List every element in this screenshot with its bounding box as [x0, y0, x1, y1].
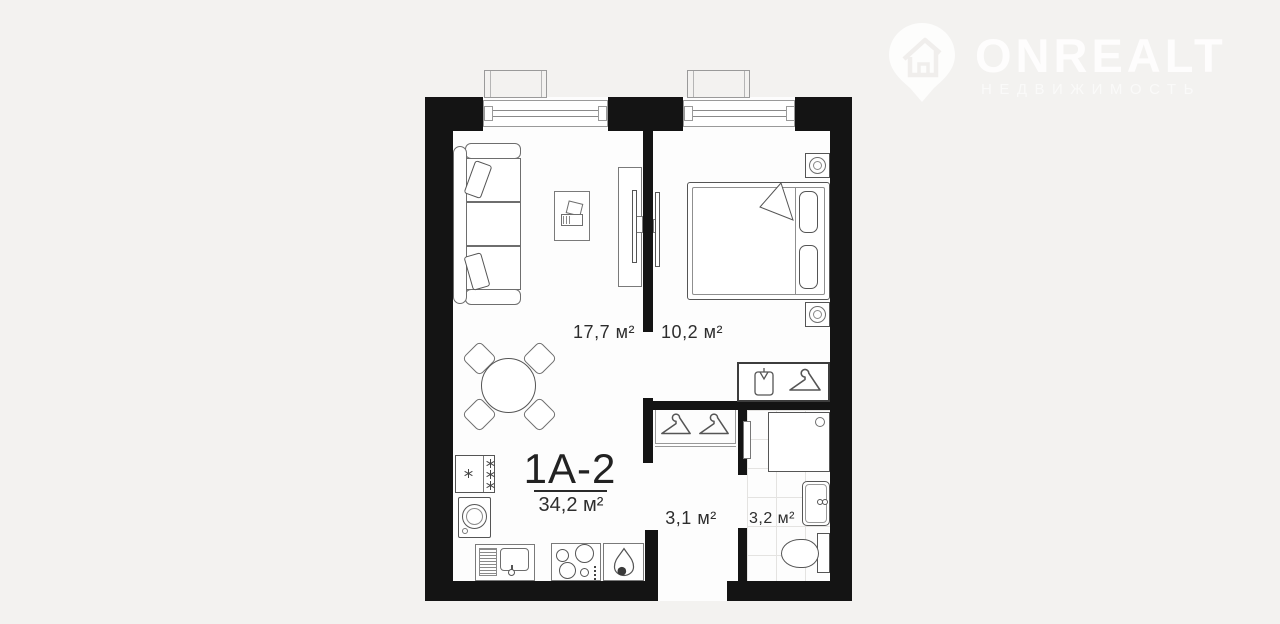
window-living-glass — [492, 110, 599, 117]
hanger-icon — [787, 369, 823, 395]
wall-left — [425, 97, 453, 601]
living-room-area-label: 17,7 м² — [573, 322, 635, 342]
freezer-star-icon — [486, 470, 495, 479]
window-sill-left — [484, 70, 547, 98]
window-bedroom-mullion — [684, 106, 693, 121]
sofa-backrest — [453, 146, 467, 304]
sofa-cushion — [465, 202, 521, 246]
stove-knob — [594, 570, 596, 572]
tv-mount — [636, 216, 643, 233]
burner — [559, 562, 576, 579]
unit-title-underline — [534, 490, 607, 492]
stove-knob — [594, 574, 596, 576]
wall-hallway-left-stub — [643, 398, 653, 463]
dining-table — [481, 358, 536, 413]
wall-living-bedroom-partition — [643, 131, 653, 332]
wall-bottom-right — [727, 581, 852, 601]
wall-top-middle — [608, 97, 683, 131]
floorplan-page: ONREALT НЕДВИЖИМОСТЬ — [0, 0, 1280, 624]
window-bedroom-glass — [692, 110, 786, 117]
window-sill-left-line — [490, 71, 491, 97]
bed-pillow — [799, 245, 818, 289]
bedroom-area-label: 10,2 м² — [661, 322, 723, 342]
burner — [556, 549, 569, 562]
lamp-inner — [813, 310, 822, 319]
brand-name: ONREALT — [975, 28, 1227, 83]
hanger-icon — [659, 413, 693, 439]
total-area-label: 34,2 м² — [539, 494, 604, 516]
stove-knob — [594, 566, 596, 568]
bed-pillow — [799, 191, 818, 233]
window-sill-right — [687, 70, 750, 98]
hanger-icon — [697, 413, 731, 439]
shower-drain — [815, 417, 825, 427]
lamp-inner — [813, 161, 822, 170]
washer-drum-inner — [466, 508, 483, 525]
window-sill-right-line — [693, 71, 694, 97]
fridge-divider — [483, 456, 484, 492]
sofa-armrest — [465, 143, 521, 159]
shirt-icon — [752, 366, 776, 398]
washer-knob — [462, 528, 468, 534]
wall-kitchen-hallway-stub — [645, 530, 658, 581]
house-pin-icon — [888, 22, 956, 104]
sink-tap-head — [508, 569, 515, 576]
burner — [575, 544, 594, 563]
window-living-mullion — [484, 106, 493, 121]
toilet-bowl — [781, 539, 819, 568]
bathroom-door — [743, 421, 751, 459]
coat-rack-shelf — [655, 443, 736, 447]
wall-hallway-top — [653, 401, 830, 410]
wall-bathroom-left-lower — [738, 528, 747, 581]
burner — [580, 568, 589, 577]
brand-tagline: НЕДВИЖИМОСТЬ — [981, 81, 1201, 98]
basin-tap — [822, 499, 828, 505]
hallway-area-label: 3,1 м² — [665, 508, 716, 528]
tv-screen-living — [632, 190, 637, 263]
blanket-fold — [753, 180, 799, 224]
wall-bottom-left — [425, 581, 658, 601]
tv-screen-bedroom — [655, 192, 660, 267]
window-bedroom-mullion — [786, 106, 795, 121]
laptop-keyboard — [563, 216, 571, 224]
stove-knob — [594, 578, 596, 580]
wall-right — [830, 97, 852, 601]
window-sill-left-line — [541, 71, 542, 97]
sink-basin — [500, 548, 529, 571]
sofa-armrest — [465, 289, 521, 305]
window-living-mullion — [598, 106, 607, 121]
unit-title: 1А-2 — [524, 448, 617, 490]
flame-icon — [611, 546, 637, 579]
window-sill-right-line — [744, 71, 745, 97]
freezer-star-icon — [464, 469, 473, 478]
freezer-star-icon — [486, 459, 495, 468]
drainboard — [479, 548, 497, 576]
freezer-star-icon — [486, 481, 495, 490]
bathroom-area-label: 3,2 м² — [749, 510, 795, 528]
